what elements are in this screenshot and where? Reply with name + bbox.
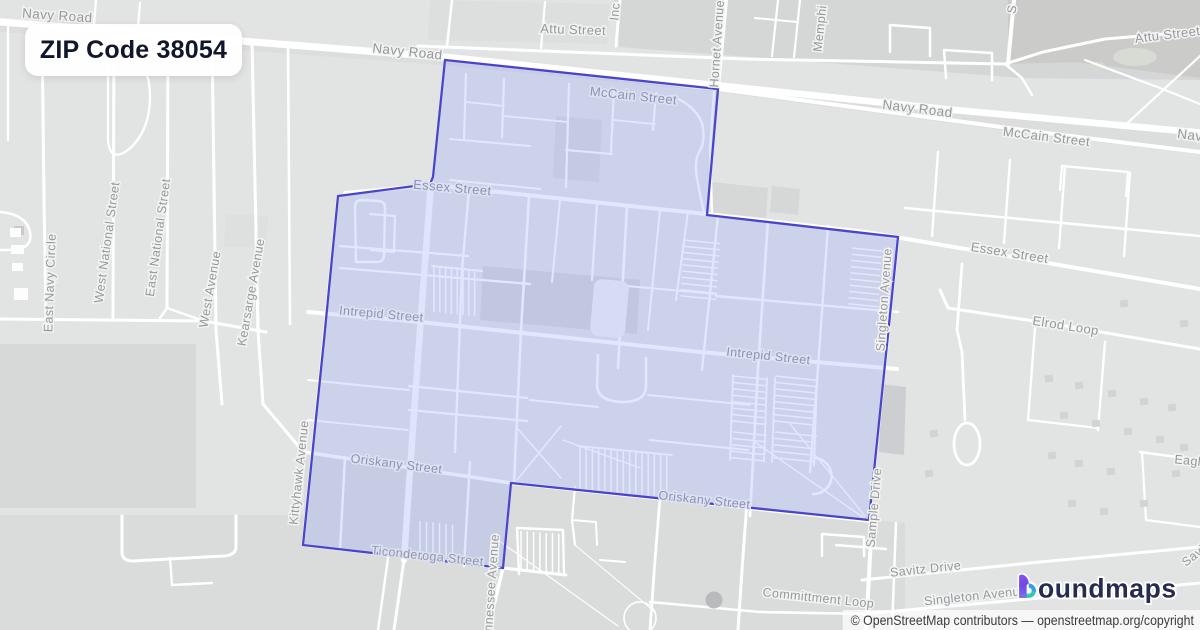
svg-text:oundmaps: oundmaps [1038, 574, 1177, 604]
svg-text:Inc: Inc [607, 2, 623, 21]
svg-text:Attu Street: Attu Street [540, 21, 606, 38]
